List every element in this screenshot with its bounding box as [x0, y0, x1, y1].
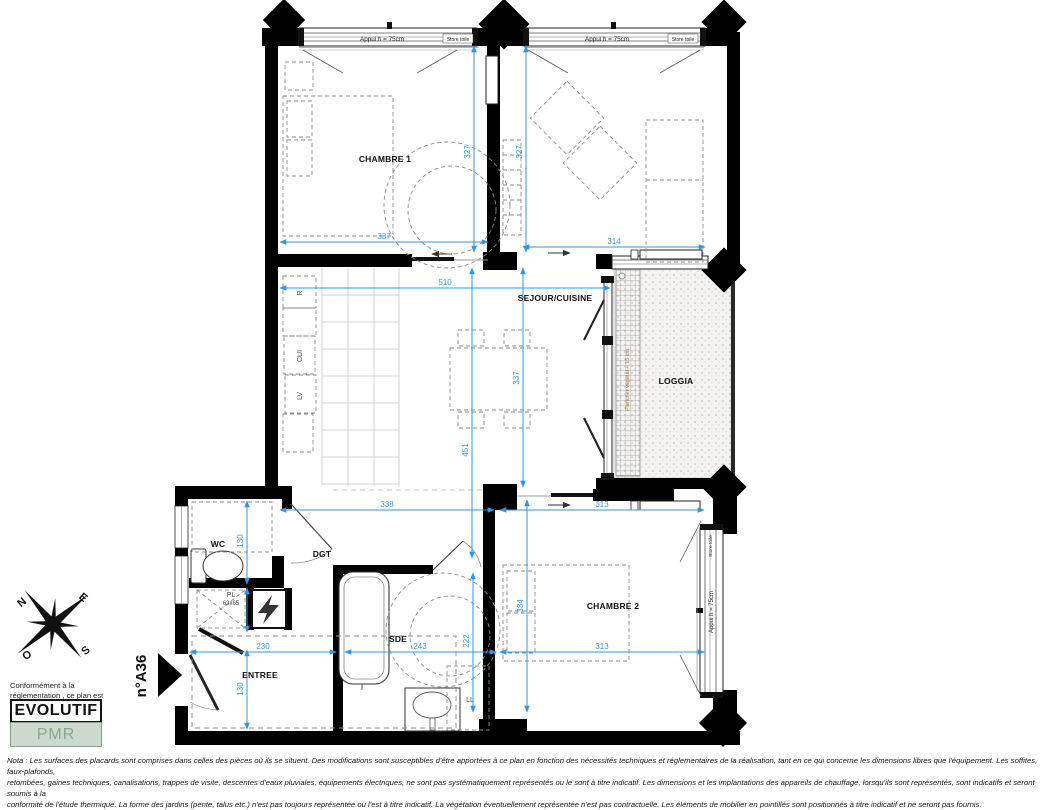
entrance-arrow-icon: [158, 653, 182, 697]
svg-text:451: 451: [461, 443, 470, 457]
svg-text:338: 338: [380, 500, 394, 509]
svg-text:313: 313: [595, 642, 609, 651]
washbasin: [405, 688, 460, 731]
sill-label-b: Appui h = 75cm: [585, 36, 629, 43]
svg-text:337: 337: [377, 232, 391, 241]
dim-sejour-right-height: 327: [515, 46, 526, 252]
dim-chambre2-width: 313: [500, 642, 704, 652]
sofa: [646, 120, 703, 262]
blind-label-a: Store toile: [447, 37, 470, 43]
room-label-pl: PL: [227, 592, 236, 599]
dim-sejour-width: 510: [280, 278, 610, 288]
svg-text:222: 222: [462, 634, 471, 648]
room-label-sejour: SEJOUR/CUISINE: [518, 293, 593, 303]
loggia-floor-note: Plancher végétal + 15 cm: [625, 348, 631, 411]
dim-entree-height: 130: [236, 650, 247, 729]
disclaimer-line1: Nota : Les surfaces des placards sont co…: [7, 755, 1053, 777]
conformity-line1: Conformément à la: [10, 681, 150, 691]
compass-rose: N E S O: [0, 561, 117, 688]
loggia-rail: [731, 268, 735, 478]
loggia-area: [614, 266, 735, 478]
svg-text:327: 327: [515, 145, 524, 159]
dim-sejour-total-height: 451: [461, 268, 472, 558]
window-sejour: [524, 22, 705, 73]
window-chambre1: [299, 22, 479, 73]
dining-table: [450, 348, 547, 410]
svg-text:243: 243: [413, 642, 427, 651]
dim-chambre1-height: 327: [463, 46, 474, 252]
evolutif-badge: EVOLUTIF: [10, 699, 102, 723]
dim-chambre2-height: 334: [516, 500, 527, 712]
closet-pl: [197, 590, 245, 628]
room-label-chambre2: CHAMBRE 2: [587, 601, 639, 611]
dim-sejour-right-width: 314: [523, 237, 705, 247]
svg-text:337: 337: [512, 371, 521, 385]
svg-text:130: 130: [236, 682, 245, 696]
window-loggia-left: [584, 276, 614, 480]
svg-text:230: 230: [256, 642, 270, 651]
svg-text:327: 327: [463, 145, 472, 159]
disclaimer-line2: retombées, gaines techniques, canalisati…: [7, 777, 1053, 799]
svg-text:334: 334: [516, 599, 525, 613]
svg-text:510: 510: [438, 278, 452, 287]
dim-sde-height: 222: [462, 573, 473, 712]
bed-chambre1: [283, 96, 393, 236]
dim-chambre1-width: 337: [280, 232, 488, 242]
disclaimer: Nota : Les surfaces des placards sont co…: [7, 755, 1053, 810]
room-label-wc: WC: [211, 539, 226, 549]
disclaimer-line3: conformité de l'étude thermique. La form…: [7, 799, 1053, 810]
radiator: [640, 501, 700, 510]
conformity-note: Conformément à la réglementation , ce pl…: [10, 681, 150, 700]
room-label-entree: ENTREE: [242, 670, 278, 680]
room-label-chambre1: CHAMBRE 1: [359, 154, 411, 164]
label-washing-machine: LL: [466, 697, 474, 704]
toilet: [203, 551, 243, 581]
room-label-sde: SDE: [389, 634, 407, 644]
blind-label-b: Store toile: [672, 37, 695, 43]
sill-label-c2: Appui h = 75cm: [709, 591, 715, 633]
svg-text:313: 313: [595, 500, 609, 509]
label-fridge: R: [297, 290, 304, 295]
window-chambre2: [680, 521, 723, 698]
floor-plan: 337 314 327 327 510 337 451 338: [0, 0, 1060, 800]
pl-size: 63x65: [223, 601, 240, 607]
dim-hall-width: 338: [280, 500, 494, 510]
plan-sheet: 337 314 327 327 510 337 451 338: [0, 0, 1060, 800]
kitchen-counter: [322, 268, 399, 486]
svg-text:130: 130: [236, 534, 245, 548]
room-label-loggia: LOGGIA: [659, 376, 694, 386]
svg-text:314: 314: [607, 237, 621, 246]
label-dishwasher: LV: [297, 392, 304, 400]
pmr-badge: PMR: [10, 722, 102, 747]
electrical-panel: [252, 590, 286, 628]
room-label-dgt: DGT: [313, 549, 332, 559]
label-cooker: CUI: [297, 350, 304, 362]
compass-s: S: [79, 644, 92, 658]
compass-n: N: [15, 596, 29, 610]
blind-label-c2: Store toile: [708, 535, 714, 557]
radiator: [486, 56, 498, 104]
sill-label-a: Appui h = 75cm: [360, 36, 404, 43]
radiator: [640, 250, 702, 259]
bathtub: [339, 572, 389, 690]
pmr-circle: [386, 573, 500, 687]
dim-entree-width: 230: [190, 642, 336, 652]
